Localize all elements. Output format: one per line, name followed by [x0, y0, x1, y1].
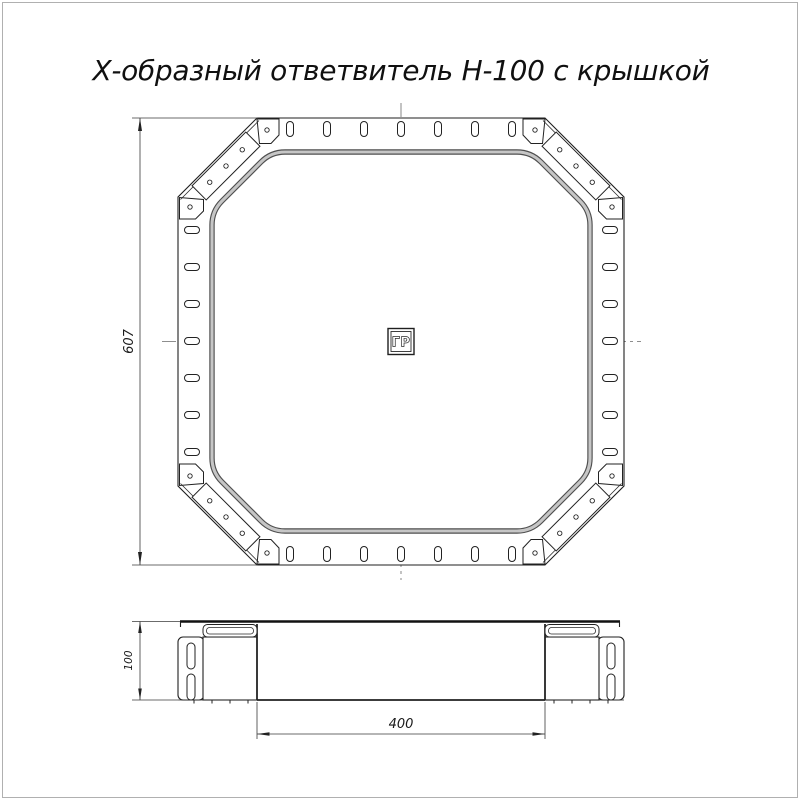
side-view: 100 400: [123, 622, 624, 740]
top-view: ГР 607: [122, 103, 641, 580]
dim-400-text: 400: [389, 717, 414, 732]
dim-607-text: 607: [122, 328, 137, 354]
central-body: [257, 624, 545, 700]
dim-100-text: 100: [123, 650, 135, 670]
drawing-page: Х-образный ответвитель Н-100 с крышкой: [0, 0, 800, 800]
ground-marker: ГР: [388, 329, 414, 355]
right-end-plate: [598, 637, 624, 700]
right-duct-box: [545, 637, 599, 700]
right-collar: [545, 625, 599, 638]
weld-ticks: [194, 701, 608, 704]
drawing-canvas: Х-образный ответвитель Н-100 с крышкой: [0, 0, 800, 800]
left-collar: [203, 625, 257, 638]
dimension-100: 100: [123, 622, 180, 701]
left-end-plate: [178, 637, 204, 700]
ground-marker-label: ГР: [392, 336, 411, 351]
drawing-title: Х-образный ответвитель Н-100 с крышкой: [90, 54, 709, 87]
left-duct-box: [203, 637, 257, 700]
dimension-400: 400: [257, 702, 545, 739]
